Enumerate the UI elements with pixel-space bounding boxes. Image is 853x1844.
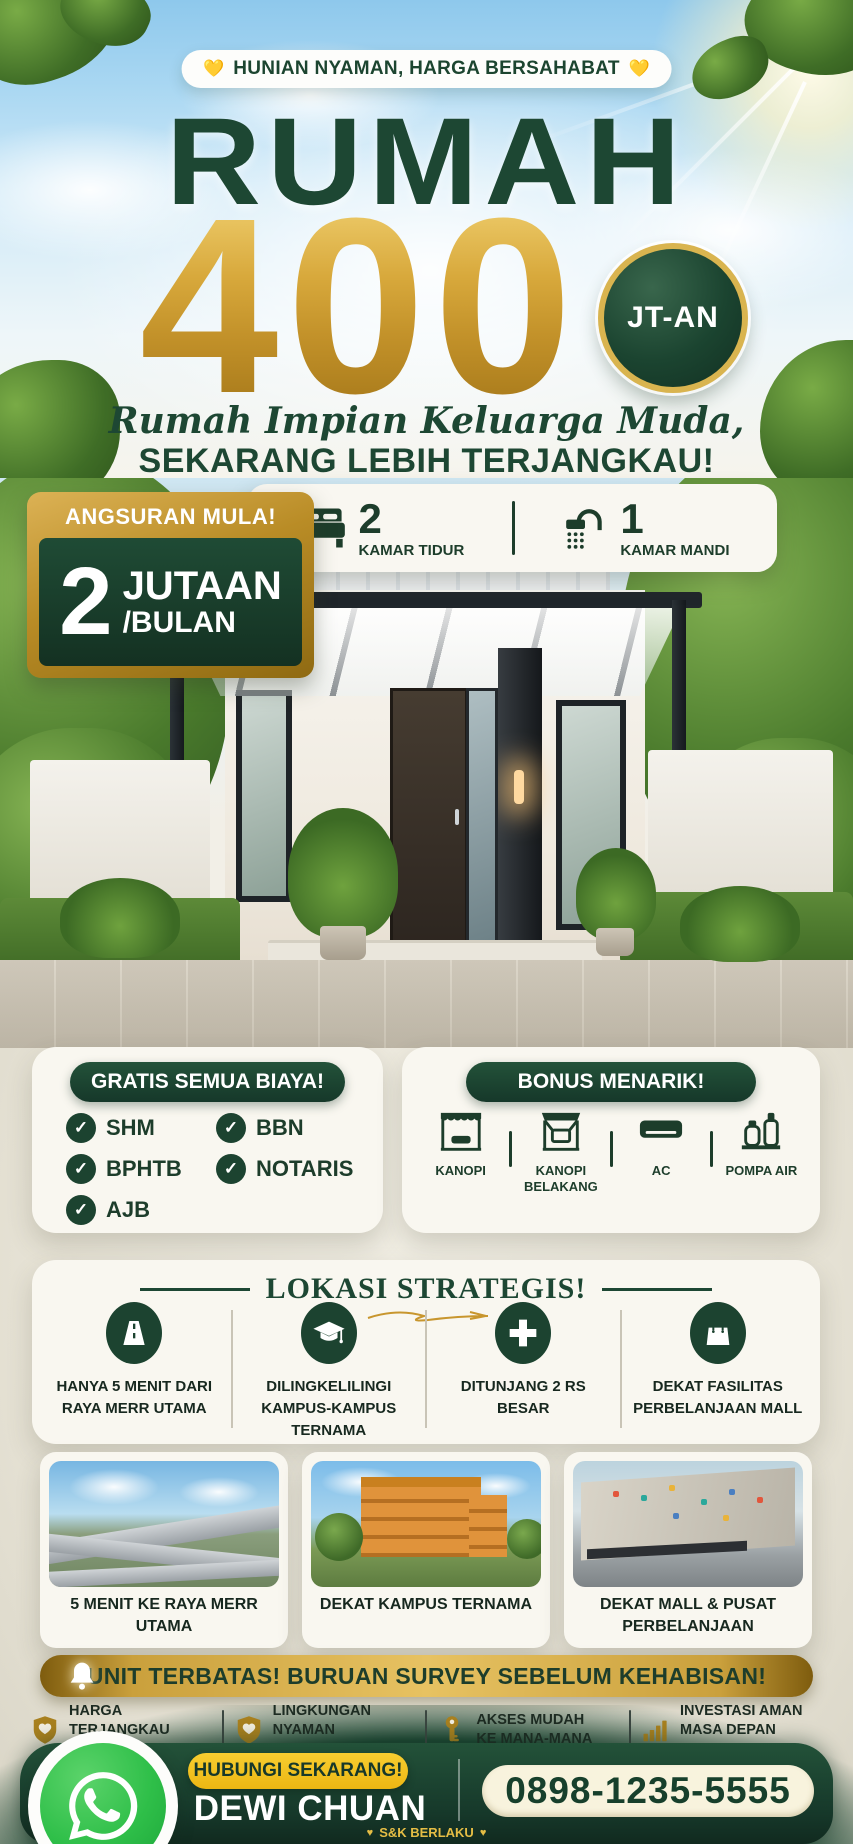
location-point: DITUNJANG 2 RS BESAR bbox=[435, 1302, 611, 1441]
terms-label: S&K BERLAKU bbox=[379, 1825, 474, 1840]
whatsapp-icon bbox=[40, 1743, 166, 1844]
bonus-item: KANOPI BELAKANG bbox=[515, 1109, 607, 1196]
tagline-bold: SEKARANG LEBIH TERJANGKAU! bbox=[0, 442, 853, 481]
top-badge-label: HUNIAN NYAMAN, HARGA BERSAHABAT bbox=[233, 58, 620, 80]
wall-lamp bbox=[514, 770, 524, 804]
shopping-bag-icon bbox=[690, 1302, 746, 1364]
graduation-cap-icon bbox=[301, 1302, 357, 1364]
cta-label: HUBUNGI SEKARANG! bbox=[194, 1760, 403, 1782]
photo-caption: 5 MENIT KE RAYA MERR UTAMA bbox=[48, 1594, 280, 1637]
gratis-item-label: AJB bbox=[106, 1197, 150, 1223]
check-icon bbox=[216, 1154, 246, 1184]
bonus-title: BONUS MENARIK! bbox=[466, 1062, 756, 1102]
bedroom-label: KAMAR TIDUR bbox=[359, 542, 465, 559]
gratis-item: SHM bbox=[66, 1109, 216, 1147]
garden-plant bbox=[60, 878, 180, 958]
price-unit-label: JT-AN bbox=[627, 301, 719, 335]
door-sidelight bbox=[466, 688, 498, 946]
bonus-item-label: KANOPI bbox=[435, 1163, 486, 1179]
campus-photo bbox=[311, 1461, 541, 1587]
phone-number: 0898-1235-5555 bbox=[505, 1770, 791, 1812]
location-point-label: DEKAT FASILITAS PERBELANJAAN MALL bbox=[630, 1376, 806, 1420]
photo-caption: DEKAT KAMPUS TERNAMA bbox=[310, 1594, 542, 1616]
gratis-title: GRATIS SEMUA BIAYA! bbox=[70, 1062, 345, 1102]
location-point-label: HANYA 5 MENIT DARI RAYA MERR UTAMA bbox=[46, 1376, 222, 1420]
property-flyer: 💛 HUNIAN NYAMAN, HARGA BERSAHABAT 💛 RUMA… bbox=[0, 0, 853, 1844]
check-icon bbox=[66, 1195, 96, 1225]
heart-icon: 💛 bbox=[203, 59, 224, 79]
medical-cross-icon bbox=[495, 1302, 551, 1364]
divider bbox=[512, 501, 515, 555]
mall-photo bbox=[573, 1461, 803, 1587]
location-point: DEKAT FASILITAS PERBELANJAAN MALL bbox=[630, 1302, 806, 1441]
divider bbox=[458, 1759, 460, 1821]
urgency-banner-text: UNIT TERBATAS! BURUAN SURVEY SEBELUM KEH… bbox=[87, 1663, 766, 1690]
specs-card: 2 KAMAR TIDUR 1 KAMAR MANDI bbox=[247, 484, 777, 572]
heart-icon: ♥ bbox=[480, 1827, 487, 1839]
gratis-item: NOTARIS bbox=[216, 1150, 366, 1188]
bonus-item-label: KANOPI BELAKANG bbox=[515, 1163, 607, 1196]
price-unit-badge: JT-AN bbox=[598, 243, 748, 393]
garden-plant bbox=[680, 886, 800, 962]
check-icon bbox=[216, 1113, 246, 1143]
gratis-item-label: BBN bbox=[256, 1115, 304, 1141]
highway-photo bbox=[49, 1461, 279, 1587]
check-icon bbox=[66, 1113, 96, 1143]
gratis-item: AJB bbox=[66, 1191, 216, 1229]
top-badge: 💛 HUNIAN NYAMAN, HARGA BERSAHABAT 💛 bbox=[181, 50, 672, 88]
divider bbox=[620, 1310, 622, 1428]
gratis-item-label: NOTARIS bbox=[256, 1156, 353, 1182]
agent-name: DEWI CHUAN bbox=[180, 1789, 440, 1829]
gratis-card: GRATIS SEMUA BIAYA! SHM BPHTB AJB BBN NO… bbox=[32, 1047, 383, 1233]
title-rule bbox=[602, 1288, 712, 1291]
installment-amount-box: 2 JUTAAN /BULAN bbox=[39, 538, 302, 666]
installment-per: /BULAN bbox=[123, 607, 282, 639]
paved-ground bbox=[0, 960, 853, 1048]
potted-plant bbox=[576, 848, 656, 940]
installment-card: ANGSURAN MULA! 2 JUTAAN /BULAN bbox=[27, 492, 314, 678]
plant-pot bbox=[596, 928, 634, 956]
divider bbox=[425, 1310, 427, 1428]
location-title: LOKASI STRATEGIS! bbox=[266, 1272, 587, 1306]
bonus-item: POMPA AIR bbox=[715, 1109, 807, 1179]
bonus-item: AC bbox=[615, 1109, 707, 1179]
cta-pill[interactable]: HUBUNGI SEKARANG! bbox=[188, 1753, 408, 1789]
location-point: HANYA 5 MENIT DARI RAYA MERR UTAMA bbox=[46, 1302, 222, 1441]
location-photo-card: 5 MENIT KE RAYA MERR UTAMA bbox=[40, 1452, 288, 1648]
bathroom-label: KAMAR MANDI bbox=[620, 542, 729, 559]
location-card: LOKASI STRATEGIS! HANYA 5 MENIT DARI RAY… bbox=[32, 1260, 820, 1444]
ac-icon bbox=[637, 1109, 685, 1155]
location-point-label: DILINGKELILINGI KAMPUS-KAMPUS TERNAMA bbox=[241, 1376, 417, 1441]
title-rule bbox=[140, 1288, 250, 1291]
urgency-banner: UNIT TERBATAS! BURUAN SURVEY SEBELUM KEH… bbox=[40, 1655, 813, 1697]
water-pump-icon bbox=[737, 1109, 785, 1155]
bonus-item-label: AC bbox=[652, 1163, 671, 1179]
location-photo-card: DEKAT KAMPUS TERNAMA bbox=[302, 1452, 550, 1648]
heart-icon: 💛 bbox=[629, 59, 650, 79]
road-icon bbox=[106, 1302, 162, 1364]
gratis-item: BBN bbox=[216, 1109, 366, 1147]
gratis-item-label: SHM bbox=[106, 1115, 155, 1141]
bonus-card: BONUS MENARIK! KANOPI KANOPI BELAKANG bbox=[402, 1047, 820, 1233]
photo-caption: DEKAT MALL & PUSAT PERBELANJAAN bbox=[572, 1594, 804, 1637]
feature-line1: INVESTASI AMAN bbox=[680, 1702, 823, 1721]
contact-footer: HUBUNGI SEKARANG! DEWI CHUAN 0898-1235-5… bbox=[20, 1743, 833, 1844]
location-photo-card: DEKAT MALL & PUSAT PERBELANJAAN bbox=[564, 1452, 812, 1648]
canopy-icon bbox=[437, 1109, 485, 1155]
plant-pot bbox=[320, 926, 366, 960]
check-icon bbox=[66, 1154, 96, 1184]
divider bbox=[231, 1310, 233, 1428]
installment-label: ANGSURAN MULA! bbox=[27, 504, 314, 530]
divider bbox=[509, 1131, 512, 1167]
potted-palm bbox=[288, 808, 398, 938]
shower-icon bbox=[562, 505, 608, 551]
front-door bbox=[390, 688, 468, 946]
house-window-left bbox=[236, 690, 292, 902]
feature-line1: AKSES MUDAH bbox=[476, 1711, 592, 1730]
bedroom-count: 2 bbox=[359, 498, 465, 540]
installment-amount: 2 bbox=[59, 559, 112, 645]
heart-icon: ♥ bbox=[367, 1827, 374, 1839]
location-point: DILINGKELILINGI KAMPUS-KAMPUS TERNAMA bbox=[241, 1302, 417, 1441]
canopy-back-icon bbox=[537, 1109, 585, 1155]
whatsapp-button[interactable] bbox=[28, 1731, 178, 1844]
gratis-item: BPHTB bbox=[66, 1150, 216, 1188]
bell-icon bbox=[66, 1660, 98, 1692]
tagline-script: Rumah Impian Keluarga Muda, bbox=[0, 400, 853, 442]
gratis-item-label: BPHTB bbox=[106, 1156, 182, 1182]
divider bbox=[710, 1131, 713, 1167]
bonus-item: KANOPI bbox=[415, 1109, 507, 1179]
location-point-label: DITUNJANG 2 RS BESAR bbox=[435, 1376, 611, 1420]
bathroom-count: 1 bbox=[620, 498, 729, 540]
bedroom-spec: 2 KAMAR TIDUR bbox=[295, 498, 465, 559]
installment-unit: JUTAAN bbox=[123, 565, 282, 607]
divider bbox=[610, 1131, 613, 1167]
bathroom-spec: 1 KAMAR MANDI bbox=[562, 498, 729, 559]
phone-button[interactable]: 0898-1235-5555 bbox=[482, 1765, 814, 1817]
bonus-item-label: POMPA AIR bbox=[726, 1163, 798, 1179]
feature-line1: LINGKUNGAN NYAMAN bbox=[273, 1702, 416, 1740]
